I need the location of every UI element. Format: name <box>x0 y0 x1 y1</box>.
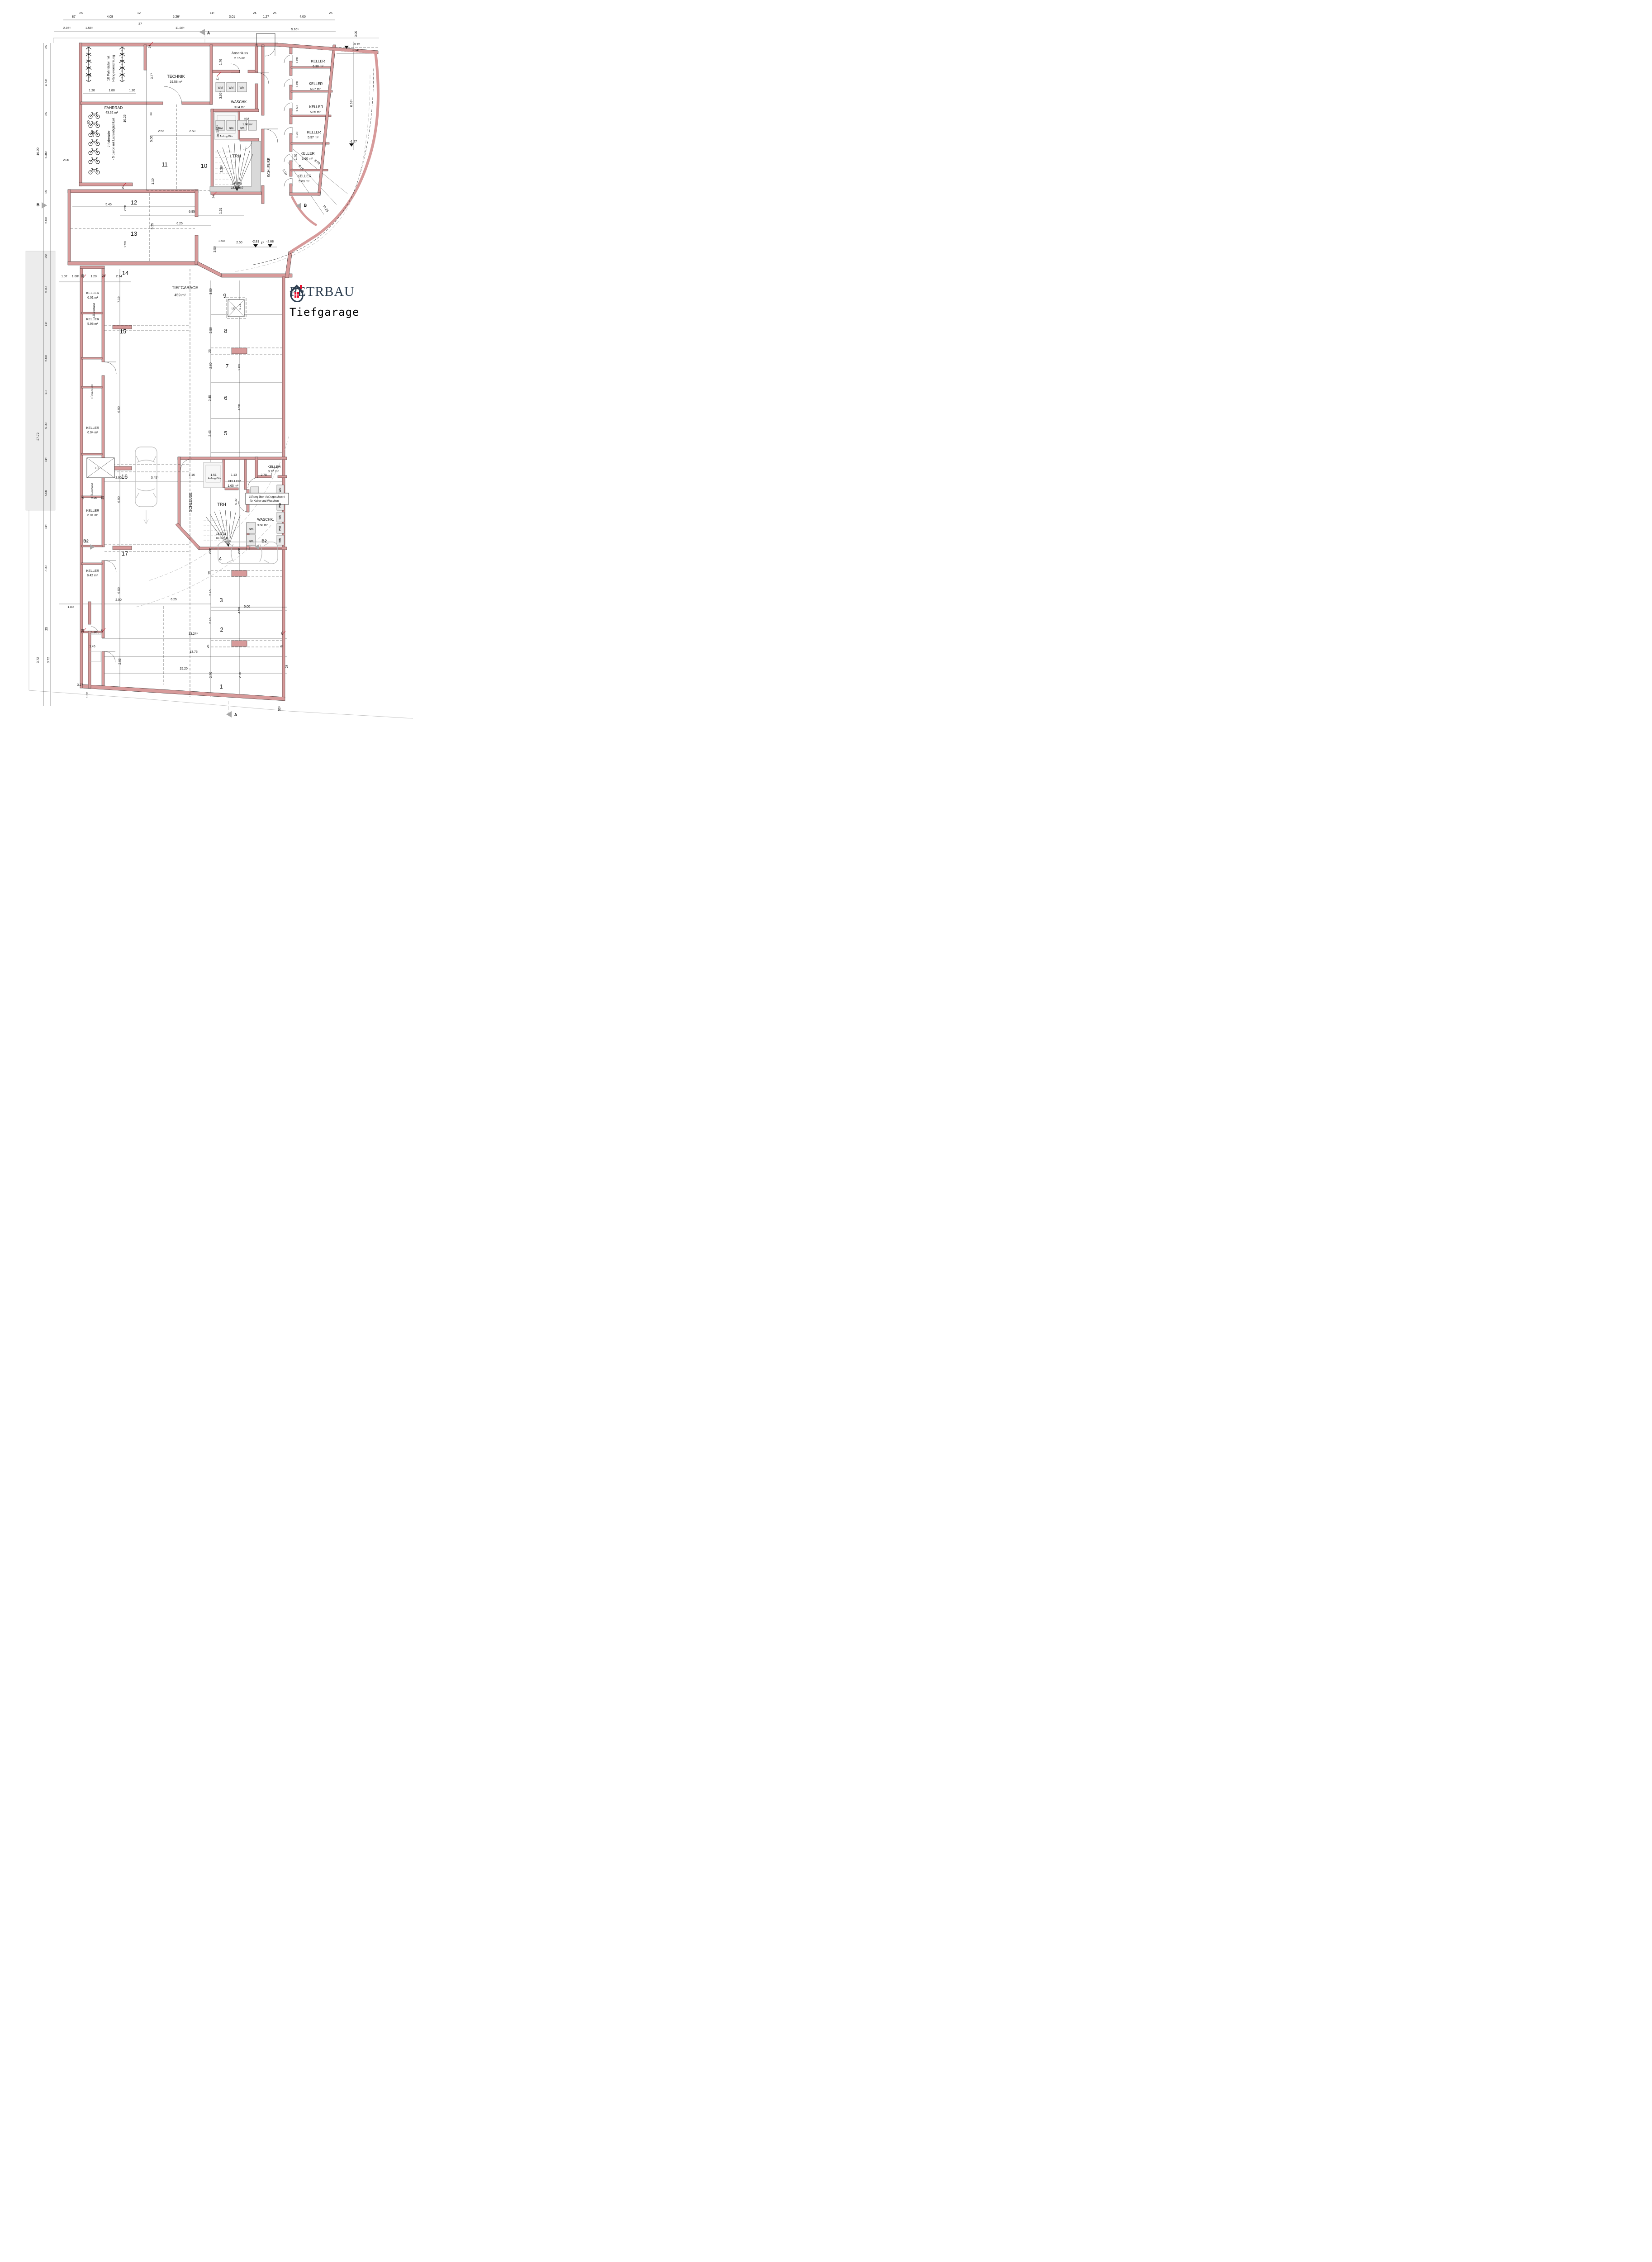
wm-label: WM <box>229 87 234 90</box>
dim-label: 25 <box>208 571 211 575</box>
stall-number: 15 <box>120 328 126 335</box>
dim-label: 2.50 <box>236 241 242 244</box>
dim-label: 24 <box>253 12 256 15</box>
room-area: 6.01 m² <box>87 296 98 299</box>
level-marker-icon <box>349 143 354 147</box>
vent-shaft-left <box>87 458 114 478</box>
section-marker-label: B2 <box>83 539 89 543</box>
shaft-label: LÜ <box>232 307 235 310</box>
wm-label: WM <box>279 538 282 543</box>
dim-label: 5.02 <box>235 499 238 505</box>
room-label: KELLER <box>228 479 241 483</box>
dim-label: 1.60 <box>296 81 299 87</box>
dim-label: 1.20 <box>90 275 97 278</box>
dim-label: LÜ-Verbund <box>91 385 94 399</box>
dim-label: 25 <box>45 112 48 116</box>
dim-label: 1.27 <box>263 15 269 19</box>
dim-label: -1.27 <box>350 140 357 143</box>
dim-label: 5.00 <box>45 423 48 429</box>
stair-bottom <box>204 510 240 546</box>
dim-label: 1.80 <box>91 131 95 137</box>
dim-label: 1.02 <box>86 692 89 698</box>
dim-label: 1.10 <box>152 178 155 185</box>
dim-label: 2.60 <box>209 548 212 554</box>
dim-label: 2.60 <box>238 364 241 371</box>
dim-label: 1.80 <box>67 606 74 609</box>
vent-unit <box>251 487 259 493</box>
stall-number: 14 <box>122 270 128 276</box>
dim-label: 6.74 <box>239 304 242 309</box>
room-area: 8.42 m² <box>87 574 98 577</box>
dim-label: 18.8/26.0 <box>215 537 228 540</box>
dim-label: 1.70 <box>294 154 298 160</box>
dim-label: 16.00 <box>37 147 40 156</box>
room-label: TRH <box>232 154 241 159</box>
room-area: 5.63 m² <box>299 180 309 183</box>
dim-label: - 5 davon mit Lademöglichkeit <box>112 118 115 160</box>
dim-label: 3.72 <box>47 657 50 663</box>
wm-label: WM <box>240 126 245 129</box>
vent-shaft-center <box>226 298 246 318</box>
stall-number: 8 <box>224 328 227 334</box>
dim-label: 18.8/26.0 <box>231 186 243 190</box>
dim-label: 6.63⁵ <box>350 100 353 107</box>
dim-label: 5.26⁵ <box>173 15 180 19</box>
dim-label: 11⁵ <box>45 524 48 529</box>
room-area: 19.58 m² <box>170 81 182 84</box>
dim-label: 3.00 <box>355 31 358 37</box>
section-a-marker-icon <box>199 29 205 35</box>
callout-text: für Keller und Waschen <box>250 499 279 503</box>
dim-label: 37 <box>138 23 142 26</box>
dim-label: 25 <box>81 629 85 632</box>
stall-number: 16 <box>121 473 128 480</box>
dim-label: .80 <box>89 73 92 77</box>
dim-label: 2.60 <box>238 548 241 554</box>
dim-label: 1.00⁵ <box>72 275 80 278</box>
room-area: 5.98 m² <box>87 323 98 326</box>
dim-label: 4.00 <box>299 15 306 19</box>
stall-number: 12 <box>131 199 137 206</box>
dim-label: 6.90 <box>118 496 121 503</box>
dim-label: 5.36⁵ <box>45 151 48 159</box>
stall-number: 17 <box>122 550 128 557</box>
dim-label: 2.78 <box>261 474 267 477</box>
dim-label: 2.45 <box>209 395 212 401</box>
wm-label: WM <box>279 503 282 508</box>
dim-label: 3.45⁵ <box>151 476 159 480</box>
room-label: KELLER <box>86 508 100 513</box>
stall-number: 10 <box>201 162 207 169</box>
room-label: KELLER <box>298 174 312 178</box>
dim-label: 11⁵ <box>210 12 214 15</box>
dim-label: 3.50 <box>209 288 213 295</box>
dim-label: 3.50 <box>218 240 225 243</box>
dim-label: 2.60 <box>209 362 213 369</box>
room-label: Anschluss <box>232 51 248 55</box>
room-area: 5.16 m² <box>234 57 245 60</box>
dim-label: 1.63⁵ <box>216 125 219 133</box>
dim-label: 13.75 <box>190 651 198 654</box>
dim-label: 10.25 <box>123 114 127 123</box>
dim-label: -2.68 <box>266 240 274 243</box>
wm-label: WM <box>240 87 245 90</box>
dim-label: 25 <box>79 12 83 15</box>
dim-label: 3.27 <box>77 684 83 687</box>
stall-number: 1 <box>219 683 223 690</box>
room-label: WASCHK. <box>257 518 274 522</box>
dim-label: 25⁵ <box>45 254 48 259</box>
wm-label: WM <box>218 87 223 90</box>
stall-number: 5 <box>224 430 227 437</box>
room-label: KELLER <box>309 105 323 109</box>
pier <box>232 570 247 576</box>
dim-label: 11.98⁵ <box>176 27 185 30</box>
dim-label: 25 <box>281 632 284 635</box>
dim-label: 2.50 <box>124 205 127 211</box>
wm-label: WM <box>279 515 282 520</box>
dim-label: 1.58⁵ <box>85 27 93 30</box>
stall-number: 7 <box>225 363 228 370</box>
dim-label: 24 <box>148 45 152 48</box>
stall-number: 6 <box>224 394 227 401</box>
dim-label: 2.50 <box>124 241 127 247</box>
dim-label: 5.00 <box>45 286 48 293</box>
dim-label: 25 <box>329 12 332 15</box>
dim-label: 11⁵ <box>45 457 48 462</box>
section-marker-label: A <box>207 31 210 35</box>
room-label: TRH <box>217 502 226 507</box>
dim-label: 24 <box>285 665 289 668</box>
dim-label: 4.63⁵ <box>45 79 48 86</box>
stall-number: 2 <box>220 626 223 633</box>
room-label: SCHLEUSE <box>267 157 271 177</box>
stall-number: 13 <box>131 230 137 237</box>
wm-label: WM <box>249 539 254 542</box>
wm-label: WM <box>279 488 282 493</box>
dim-label: 16 STG <box>216 532 226 536</box>
room-area: 9.04 m² <box>234 106 245 109</box>
dim-label: 6.90 <box>118 406 121 413</box>
room-label: HM <box>244 117 250 121</box>
equipment <box>87 33 289 661</box>
pier <box>232 348 247 354</box>
dim-label: 6.25 <box>176 222 183 225</box>
room-label: SCHLEUSE <box>189 492 193 512</box>
dim-label: -2.81 <box>252 240 259 243</box>
section-marker-label: B <box>304 203 307 208</box>
dim-label: 5.45 <box>105 203 112 206</box>
dim-label: 25 <box>209 349 212 353</box>
dim-label: 5.00 <box>244 605 250 608</box>
dim-label: 11⁵ <box>45 322 48 326</box>
ramp-centerline <box>253 68 374 265</box>
dim-label: 6.25 <box>171 598 177 601</box>
dim-label: 87 <box>261 242 264 245</box>
room-area: 6.04 m² <box>87 431 98 434</box>
room-label: KELLER <box>86 569 100 573</box>
dim-label: 15.20 <box>180 667 188 670</box>
dim-label: 2.95 <box>119 658 122 665</box>
dim-label: 4.90 <box>238 404 241 410</box>
dim-label: 1.76 <box>219 59 223 65</box>
dim-label: 1.20 <box>91 497 97 500</box>
wm-label: WM <box>249 527 254 530</box>
dim-label: 1.60 <box>296 105 299 112</box>
dim-label: 7 Fahrräder <box>108 130 111 147</box>
dim-label: 24 <box>212 195 215 199</box>
stall-number: 4 <box>218 556 222 562</box>
room-area: 1.65 m² <box>228 485 238 488</box>
room-area: 5.60 m² <box>302 157 313 161</box>
dim-label: 3.04⁵ <box>352 49 360 52</box>
dim-label: 3.06⁵ <box>219 91 223 99</box>
dim-label: 11⁵ <box>216 76 219 81</box>
section-marker-label: B <box>37 203 40 207</box>
dim-label: 13.24⁵ <box>189 632 198 636</box>
dim-label: 1.13 <box>231 474 237 477</box>
dim-label: 25 <box>45 627 48 631</box>
room-label: TECHNIK <box>167 74 185 79</box>
dim-label: LÜ-Verbund <box>93 303 96 318</box>
pier <box>113 466 132 470</box>
dim-label: 2.45 <box>209 618 212 624</box>
room-label: KELLER <box>86 291 100 295</box>
dim-label: 11⁵ <box>45 390 48 394</box>
dim-label: 8.50 <box>313 159 320 166</box>
dim-label: 27.72 <box>37 432 40 441</box>
dim-label: 25 <box>82 496 85 499</box>
room-label: KELLER <box>86 426 100 430</box>
dim-label: 12 <box>137 12 141 15</box>
room-label: KELLER <box>307 130 321 134</box>
dim-label: 5.00 <box>281 169 288 176</box>
dim-label: -0.15 <box>353 43 360 46</box>
dim-label: 6.95 <box>189 210 195 214</box>
dim-label: 2.50 <box>189 130 195 133</box>
drawing-title: Tiefgarage <box>290 306 403 318</box>
dim-label: 1.60 <box>296 57 299 63</box>
logo-house-icon <box>289 284 305 302</box>
dim-label: 7.00 <box>45 565 48 572</box>
room-area: 3.17 m² <box>268 470 279 473</box>
room-area: 9.60 m² <box>257 524 268 527</box>
dim-label: 2.70 <box>209 672 213 678</box>
stall-number: 9 <box>223 292 226 299</box>
dim-label: 3.72 <box>37 657 40 663</box>
dim-label: 25 <box>207 645 210 648</box>
logo-text-right: BAU <box>324 284 354 299</box>
sidewalk-strip <box>26 251 55 510</box>
dim-label: 53⁵ <box>278 706 281 711</box>
dim-label: 2.52 <box>158 130 164 133</box>
dim-label: 5.00 <box>45 490 48 496</box>
room-label: KELLER <box>301 152 315 156</box>
dim-label: 2.70 <box>239 672 242 678</box>
floor-plan-page: 87254.08125.26⁵11⁵3.01241.27254.0025372.… <box>0 0 413 720</box>
room-label: KELLER <box>309 82 323 86</box>
section-marker-label: A <box>234 713 237 717</box>
section-a-marker-icon <box>226 711 232 718</box>
wm-label: WM <box>279 526 282 531</box>
ramp <box>136 45 378 607</box>
dim-label: 2.50 <box>209 327 213 333</box>
dim-label: 25 <box>45 45 48 49</box>
room-area: 6.01 m² <box>87 514 98 517</box>
dim-label: 7.19 <box>118 296 121 303</box>
dim-label: 25 <box>101 629 104 632</box>
dim-label: 10 Fahrräder mit <box>106 55 110 81</box>
dim-label: 1.16 <box>189 474 195 477</box>
dim-label: 5.25 <box>151 223 154 229</box>
dim-label: 3.01 <box>229 15 235 19</box>
dim-label: 6.50 <box>118 587 121 594</box>
room-label: TIEFGARAGE <box>172 285 198 290</box>
dim-label: 5.00 <box>45 217 48 223</box>
dim-label: 2.45 <box>209 589 212 596</box>
dim-label: 1.45 <box>89 645 95 648</box>
dim-label: 5.00 <box>150 136 153 142</box>
room-label: KELLER <box>311 59 325 63</box>
dim-label: 4.90 <box>238 607 241 613</box>
dim-label: 1.51 <box>219 208 223 214</box>
section-b-marker-icon <box>42 202 47 209</box>
room-label: KELLER <box>268 465 281 469</box>
dim-label: 16 STG <box>232 182 242 185</box>
room-area: 1.96 m² <box>242 123 253 126</box>
wm-label: WM <box>229 126 234 129</box>
pier <box>232 641 247 646</box>
dim-label: 87 <box>72 15 76 19</box>
dim-label: 25 <box>101 496 104 499</box>
room-area: 43.32 m² <box>105 111 118 114</box>
dim-label: 3.38⁵ <box>220 165 223 173</box>
shaft-label: LÜ <box>95 467 99 470</box>
room-area: 459 m² <box>175 293 186 297</box>
room-label: FAHRRAD <box>104 105 123 110</box>
dim-label: Hängevorrichtung <box>111 55 115 81</box>
bike-racks <box>86 47 125 174</box>
company-logo: PETR BAU Tiefgarage <box>290 284 403 318</box>
dim-label: 2.00 <box>63 159 69 162</box>
room-label: WASCHK. <box>231 100 247 104</box>
dim-label: 2.05⁵ <box>63 27 71 30</box>
labels-layer: 87254.08125.26⁵11⁵3.01241.27254.0025372.… <box>37 12 360 717</box>
pier <box>113 546 132 550</box>
dim-label: 0⁵ <box>280 645 284 648</box>
dim-label: 25 <box>102 275 105 278</box>
room-area: 6.30 m² <box>313 65 323 68</box>
callout-box <box>246 493 289 504</box>
dim-label: 1.80 <box>109 89 115 92</box>
dim-label: 1.07 <box>61 275 67 278</box>
dim-label: 38 <box>150 112 153 116</box>
dim-label: 5.65⁵ <box>291 28 299 31</box>
dim-label: .80 <box>87 120 90 125</box>
dim-label: 3.50 <box>214 246 217 252</box>
dim-label: 1.70 <box>296 132 299 138</box>
room-area: 6.07 m² <box>310 88 321 91</box>
dim-label: 10.25 <box>322 204 329 213</box>
dim-label: 4.08 <box>107 15 113 19</box>
callout-text: Lüftung über Aufzugsschacht <box>249 495 285 499</box>
dim-label: 25 <box>122 185 125 189</box>
dim-label: 3.77 <box>151 73 154 79</box>
room-area: 5.85 m² <box>310 111 321 114</box>
drive-arrow-icon <box>144 510 148 524</box>
dim-label: 1.20 <box>129 89 135 92</box>
elevator-label: Aufzug Otis <box>220 135 233 138</box>
floor-plan-svg: 87254.08125.26⁵11⁵3.01241.27254.0025372.… <box>0 0 413 720</box>
dim-label: LÜ-Verbund <box>91 483 94 498</box>
dim-label: 30 <box>217 134 220 138</box>
dim-label: 2.14 <box>116 275 122 278</box>
elevator-label: Aufzug Otis <box>208 477 221 480</box>
dim-label: 25 <box>81 274 85 278</box>
dim-label: 2.00 <box>115 476 122 480</box>
stall-number: 11 <box>161 161 168 168</box>
stall-number: 3 <box>219 597 223 604</box>
dim-label: 1.20 <box>91 631 97 634</box>
dim-label: 2.00 <box>115 599 122 602</box>
dim-label: 25 <box>273 12 276 15</box>
section-marker-label: B2 <box>261 539 267 543</box>
dim-label: 25 <box>45 190 48 194</box>
room-label: KELLER <box>86 317 100 321</box>
room-area: 5.97 m² <box>308 136 318 139</box>
dim-label: 5.00 <box>45 355 48 361</box>
dim-label: 2.45 <box>209 430 212 437</box>
dim-label: 1.51 <box>210 474 217 477</box>
dim-label: 1.20 <box>89 89 95 92</box>
